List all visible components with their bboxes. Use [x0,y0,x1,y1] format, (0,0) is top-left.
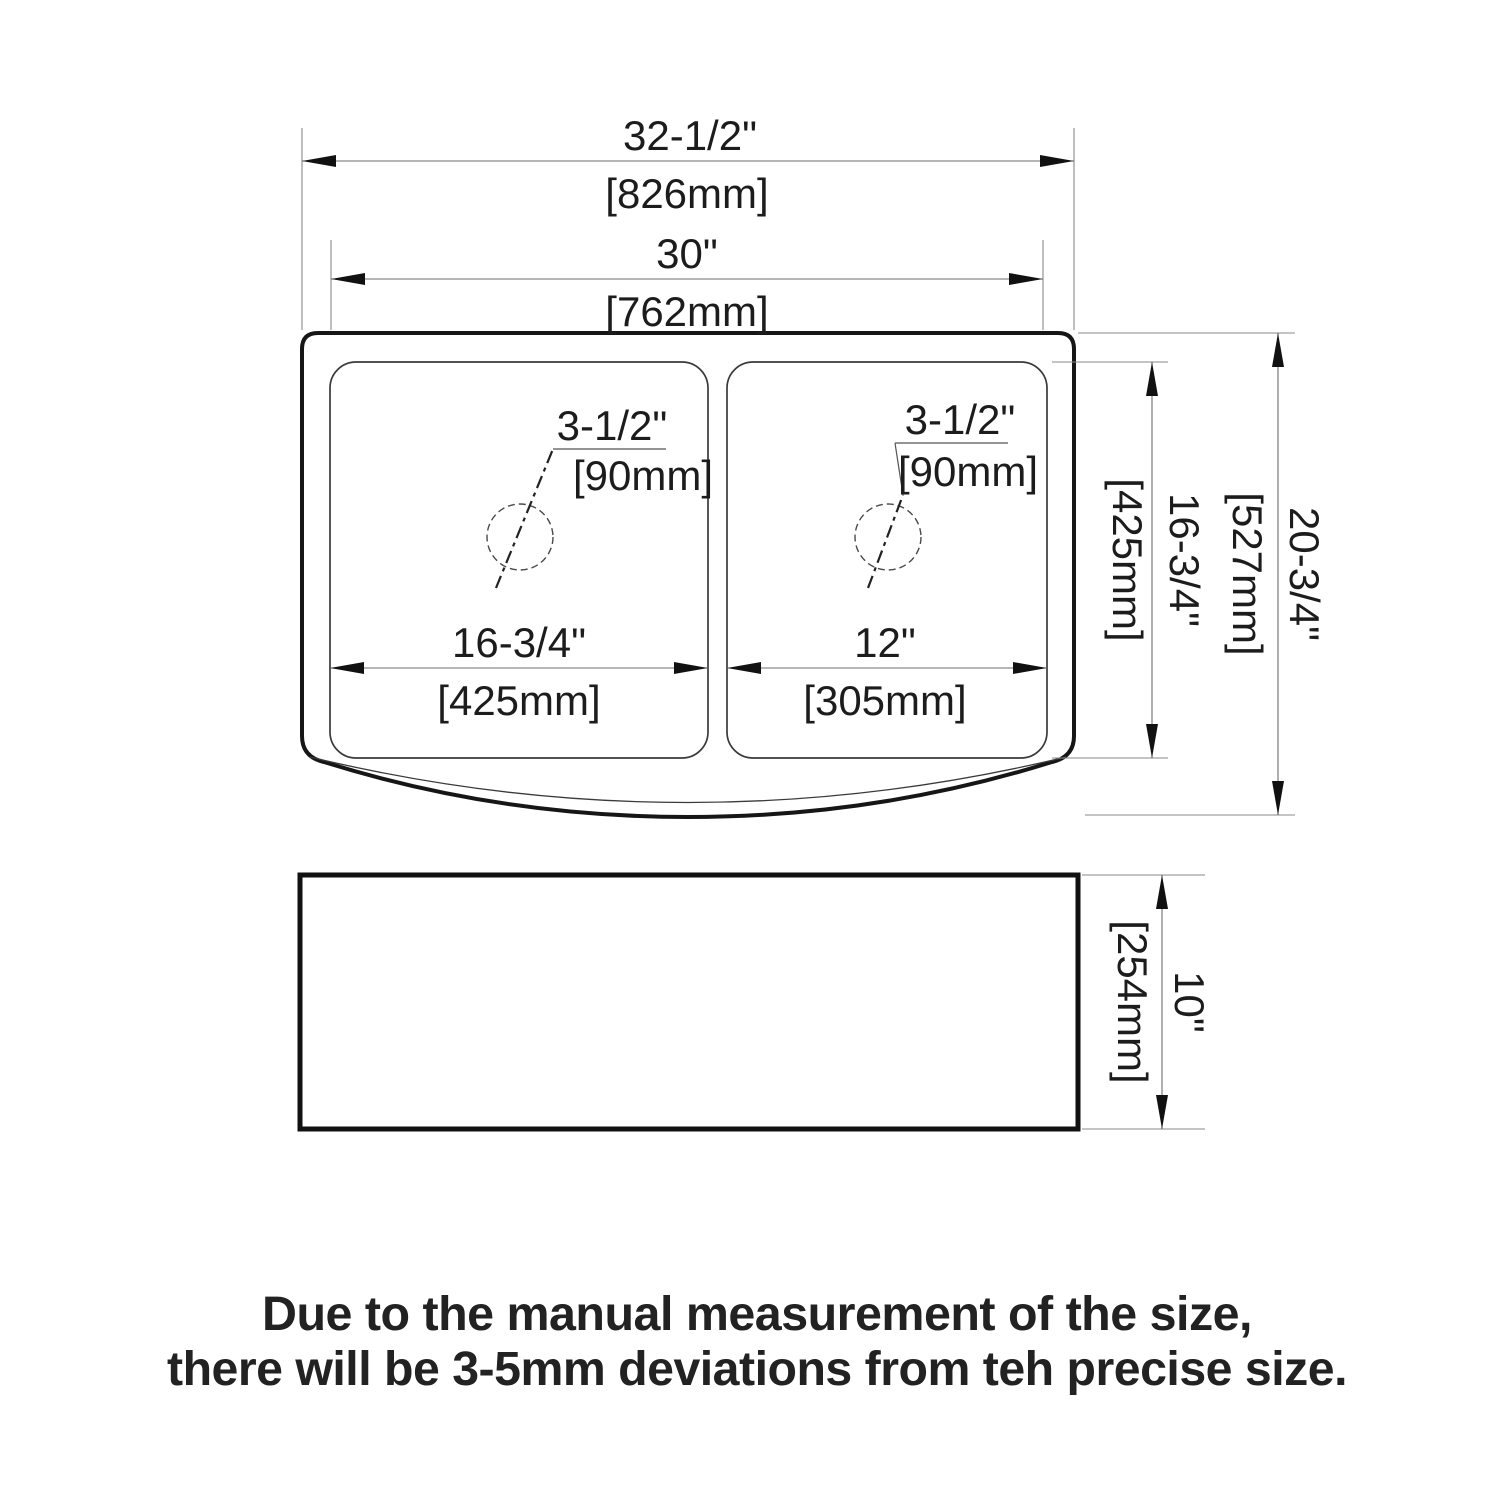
sink-dimension-diagram: 32-1/2" [826mm] 30" [762mm] 3-1/2" [90mm… [0,0,1500,1500]
left-bowl-width-inches-label: 16-3/4" [452,619,586,666]
arrow-down-icon [1146,724,1158,758]
opening-width-mm-label: [762mm] [605,288,768,335]
left-drain-circle [487,504,553,570]
arrow-up-icon [1146,362,1158,396]
right-drain-inches-label: 3-1/2" [905,396,1016,443]
arrow-right-icon [1040,155,1074,167]
arrow-left-icon [330,662,364,674]
right-bowl-width-inches-label: 12" [854,619,916,666]
bowl-depth-inches-label: 16-3/4" [1161,493,1208,627]
arrow-right-icon [674,662,708,674]
left-drain-mm-label: [90mm] [573,452,713,499]
disclaimer-line-2: there will be 3-5mm deviations from teh … [167,1343,1347,1396]
arrow-right-icon [1013,662,1047,674]
arrow-down-icon [1156,1095,1168,1129]
overall-depth-inches-label: 20-3/4" [1281,507,1328,641]
dim-left-bowl-width: 16-3/4" [425mm] [330,619,708,724]
side-height-inches-label: 10" [1166,971,1213,1033]
arrow-up-icon [1272,333,1284,367]
arrow-right-icon [1009,273,1043,285]
arrow-left-icon [727,662,761,674]
dim-right-bowl-width: 12" [305mm] [727,619,1047,724]
overall-depth-mm-label: [527mm] [1224,492,1271,655]
side-view-outline [300,875,1078,1129]
diagram-canvas: 32-1/2" [826mm] 30" [762mm] 3-1/2" [90mm… [0,0,1500,1500]
arrow-up-icon [1156,875,1168,909]
right-drain-mm-label: [90mm] [898,448,1038,495]
opening-width-inches-label: 30" [656,230,718,277]
disclaimer-text: Due to the manual measurement of the siz… [167,1288,1347,1396]
sink-side-view [300,875,1078,1129]
arrow-left-icon [302,155,336,167]
disclaimer-line-1: Due to the manual measurement of the siz… [262,1288,1252,1341]
arrow-down-icon [1272,781,1284,815]
dim-side-height: 10" [254mm] [1082,875,1213,1129]
apron-inner-curve [310,757,1066,803]
bowl-depth-mm-label: [425mm] [1104,478,1151,641]
left-drain-inches-label: 3-1/2" [557,402,668,449]
dim-opening-width: 30" [762mm] [331,230,1043,335]
left-bowl-width-mm-label: [425mm] [437,677,600,724]
arrow-left-icon [331,273,365,285]
side-height-mm-label: [254mm] [1109,920,1156,1083]
overall-width-inches-label: 32-1/2" [623,112,757,159]
overall-width-mm-label: [826mm] [605,170,768,217]
right-bowl-width-mm-label: [305mm] [803,677,966,724]
